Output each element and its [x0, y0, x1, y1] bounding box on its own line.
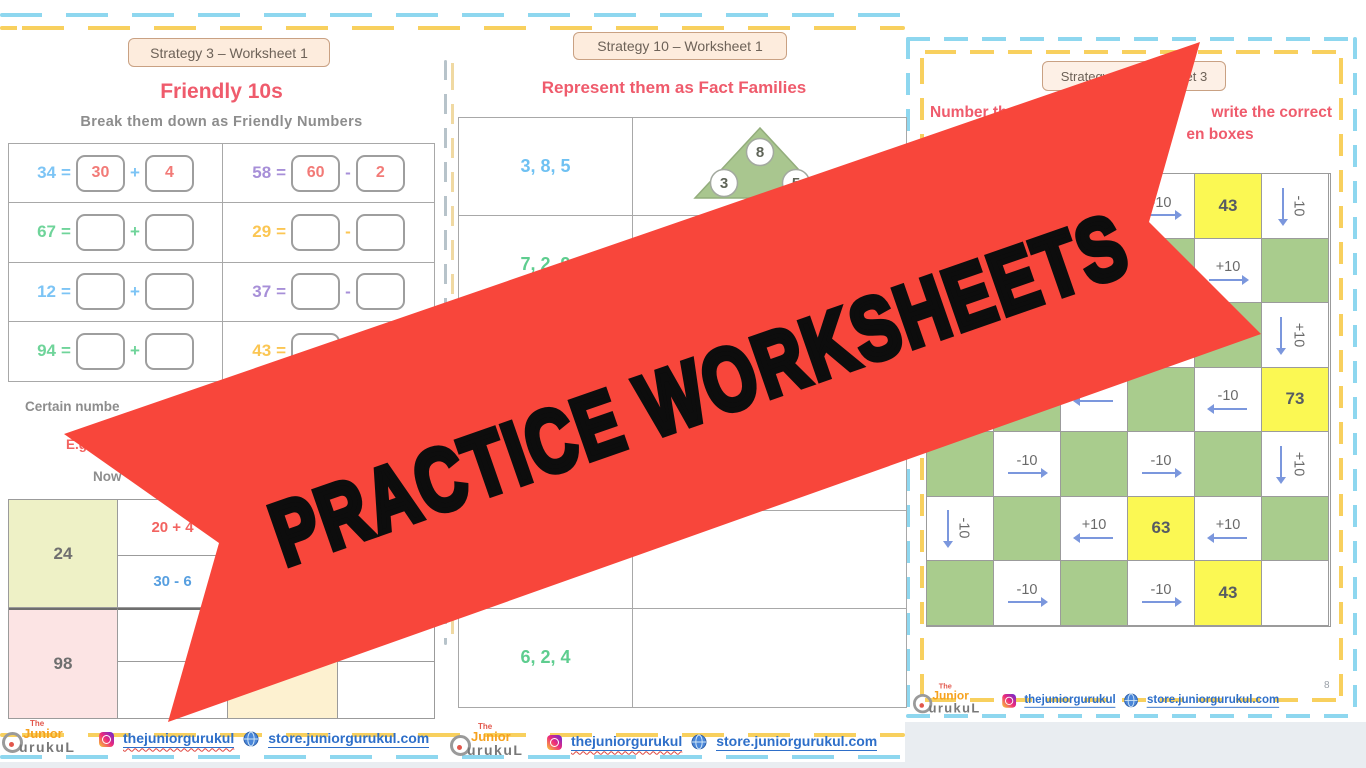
worksheet-promo-image: { "banner": { "text": "PRACTICE WORKSHEE…	[0, 0, 1366, 768]
practice-worksheets-banner: PRACTICE WORKSHEETS	[0, 0, 1366, 768]
